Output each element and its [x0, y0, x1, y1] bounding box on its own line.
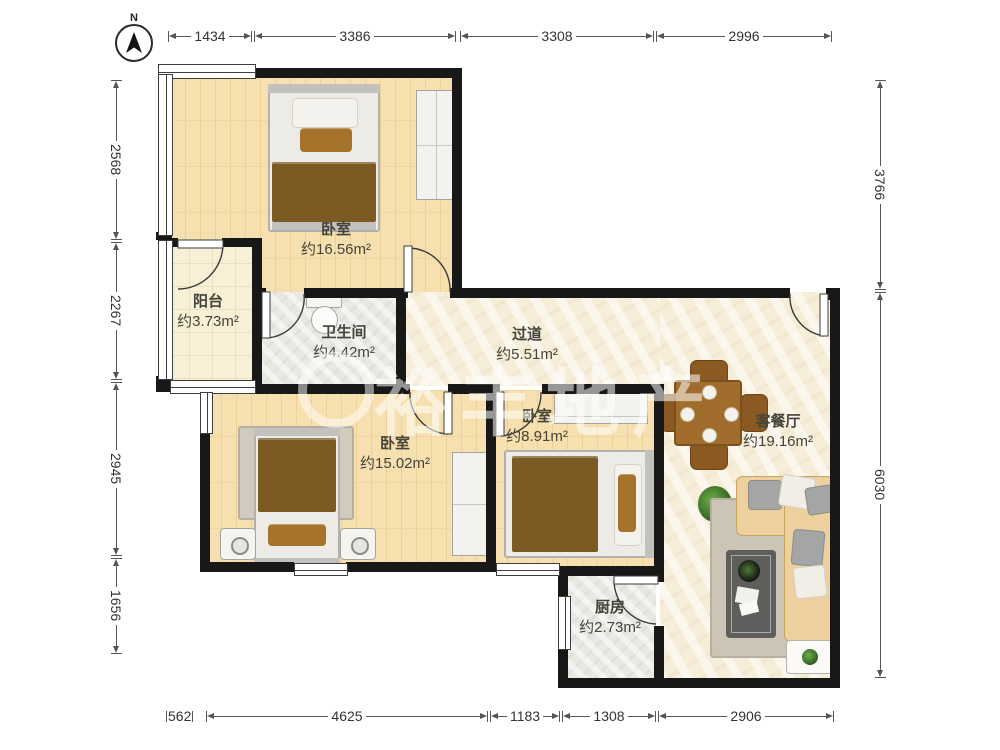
room-name: 卧室	[506, 407, 568, 427]
wall-segment	[654, 384, 664, 572]
wall-segment	[558, 678, 840, 688]
room-area: 约16.56m²	[301, 240, 371, 260]
dimension-top-4: 2996	[656, 28, 832, 44]
bed-blanket	[512, 456, 598, 552]
wall-segment	[200, 430, 210, 572]
room-label-bathroom: 卫生间 约4.42m²	[313, 323, 375, 363]
wall-segment	[252, 238, 262, 392]
sofa-cushion	[748, 480, 782, 510]
floorplan-canvas: N	[0, 0, 1000, 750]
coffee-table	[726, 550, 776, 638]
room-label-bedroom-small: 卧室 约8.91m²	[506, 407, 568, 447]
coffee-table-papers	[739, 600, 759, 616]
wardrobe-bedroom-mid	[452, 452, 488, 556]
bed-blanket	[258, 438, 336, 512]
plant-box	[786, 640, 834, 674]
wall-segment	[486, 388, 496, 572]
room-name: 厨房	[579, 598, 641, 618]
window	[496, 563, 560, 576]
bed-cushion	[268, 524, 326, 546]
room-area: 约19.16m²	[743, 432, 813, 452]
wall-segment	[450, 288, 790, 298]
dimension-bottom-4: 1308	[562, 708, 656, 724]
bed-pillow	[292, 98, 358, 128]
room-label-bedroom-top: 卧室 约16.56m²	[301, 220, 371, 260]
bed-footboard	[254, 428, 340, 436]
bed-headboard	[645, 450, 654, 558]
window	[158, 240, 173, 380]
coffee-table-plant	[738, 560, 760, 582]
dining-chair-bottom	[690, 442, 728, 470]
dimension-bottom-1: 562	[166, 708, 204, 724]
dimension-right-2: 6030	[872, 292, 888, 678]
room-name: 卫生间	[313, 323, 375, 343]
dimension-left-1: 2568	[108, 80, 124, 240]
wall-segment	[830, 296, 840, 686]
room-area: 约2.73m²	[579, 618, 641, 638]
plant-small	[802, 649, 818, 665]
nightstand-right	[340, 528, 376, 560]
compass-north-label: N	[110, 12, 158, 24]
room-name: 卧室	[301, 220, 371, 240]
wall-segment	[304, 288, 408, 298]
window	[558, 596, 571, 650]
window	[170, 380, 256, 394]
desk-bedroom-small	[554, 390, 648, 424]
dimension-bottom-2: 4625	[206, 708, 488, 724]
dimension-left-2: 2267	[108, 242, 124, 380]
window	[200, 392, 213, 434]
room-area: 约4.42m²	[313, 343, 375, 363]
dimension-top-1: 1434	[168, 28, 252, 44]
wall-segment	[558, 566, 664, 576]
wall-segment	[486, 562, 496, 572]
dimension-bottom-3: 1183	[490, 708, 560, 724]
room-area: 约3.73m²	[177, 312, 239, 332]
dimension-bottom-5: 2906	[658, 708, 834, 724]
room-label-living-dining: 客餐厅 约19.16m²	[743, 412, 813, 452]
compass: N	[110, 12, 158, 62]
room-label-bedroom-mid: 卧室 约15.02m²	[360, 434, 430, 474]
window	[294, 563, 348, 576]
room-name: 过道	[496, 325, 558, 345]
wall-segment	[346, 562, 490, 572]
dimension-top-3: 3308	[460, 28, 654, 44]
wall-segment	[396, 288, 406, 390]
room-area: 约5.51m²	[496, 345, 558, 365]
sofa-cushion	[790, 529, 825, 568]
dimension-top-2: 3386	[254, 28, 456, 44]
room-label-kitchen: 厨房 约2.73m²	[579, 598, 641, 638]
room-name: 客餐厅	[743, 412, 813, 432]
room-label-hallway: 过道 约5.51m²	[496, 325, 558, 365]
room-name: 卧室	[360, 434, 430, 454]
compass-ring	[115, 24, 153, 62]
wall-segment	[558, 646, 568, 688]
bed-cushion	[618, 474, 636, 532]
dimension-left-3: 2945	[108, 382, 124, 556]
wall-segment	[250, 68, 462, 78]
wall-segment	[222, 238, 254, 247]
wall-segment	[542, 384, 664, 394]
bed-headboard	[268, 84, 380, 93]
bed-blanket	[272, 162, 376, 222]
nightstand-left	[220, 528, 256, 560]
room-area: 约8.91m²	[506, 427, 568, 447]
wall-segment	[654, 626, 664, 684]
bed-cushion	[300, 128, 352, 152]
wardrobe-bedroom-top	[416, 90, 456, 200]
dimension-left-4: 1656	[108, 558, 124, 654]
room-name: 阳台	[177, 292, 239, 312]
compass-needle-icon	[121, 30, 147, 56]
sofa-pillow	[792, 564, 827, 599]
dining-table	[674, 380, 742, 446]
room-area: 约15.02m²	[360, 454, 430, 474]
wall-segment	[200, 562, 294, 572]
room-label-balcony: 阳台 约3.73m²	[177, 292, 239, 332]
wall-segment	[452, 68, 462, 296]
dimension-right-1: 3766	[872, 80, 888, 290]
window	[158, 74, 173, 236]
